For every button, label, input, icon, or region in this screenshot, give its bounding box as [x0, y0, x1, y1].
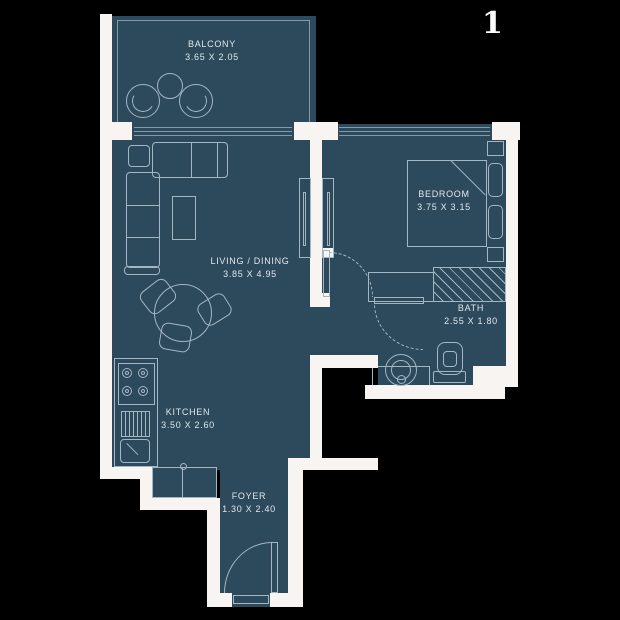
balcony-label: BALCONY 3.65 X 2.05 [185, 38, 239, 64]
shaft-top-wall [310, 355, 378, 368]
balcony-bottom-left-wall [100, 122, 132, 140]
coffee-table-icon [172, 196, 196, 240]
balcony-armchair-icon [179, 84, 213, 118]
sliding-door-line [134, 131, 292, 132]
sliding-door-line [134, 135, 292, 136]
room-name: FOYER [232, 491, 267, 501]
room-dimensions: 1.30 X 2.40 [222, 504, 276, 514]
entry-door-sill [233, 595, 269, 604]
stove-burner-icon [122, 386, 132, 396]
room-dimensions: 3.85 X 4.95 [223, 269, 277, 279]
entry-door-leaf [271, 542, 278, 593]
pillow-icon [488, 205, 503, 239]
sofa-armrest-line [217, 143, 218, 177]
utility-counter-icon [152, 467, 217, 498]
sliding-door-line [134, 127, 292, 128]
sofa-armrest-cap-icon [124, 266, 160, 275]
room-name: BALCONY [188, 39, 236, 49]
shaft-bottom-wall [288, 458, 378, 470]
bedroom-label: BEDROOM 3.75 X 3.15 [417, 188, 471, 214]
bath-bottom-wall [365, 385, 505, 399]
living-shaft-divider-wall [310, 355, 322, 470]
room-name: BEDROOM [418, 189, 469, 199]
balcony-table-icon [157, 73, 183, 99]
room-name: BATH [458, 303, 484, 313]
sofa-cushion-line [127, 205, 159, 206]
living-bedroom-divider-wall [310, 137, 322, 297]
entry-right-wall [270, 593, 303, 607]
bath-label: BATH 2.55 X 1.80 [444, 302, 498, 328]
left-exterior-wall [100, 14, 112, 479]
appliance-knob-icon [180, 463, 187, 470]
tv-screen-icon [303, 192, 306, 246]
window-line [339, 131, 490, 132]
room-dimensions: 3.50 X 2.60 [161, 420, 215, 430]
room-dimensions: 3.65 X 2.05 [185, 52, 239, 62]
bedroom-window [337, 124, 492, 140]
sofa-cushion-line [127, 237, 159, 238]
bedroom-right-wall [506, 122, 518, 387]
room-dimensions: 2.55 X 1.80 [444, 316, 498, 326]
balcony-sliding-door [132, 124, 294, 140]
stove-burner-icon [138, 386, 148, 396]
foyer-right-wall [288, 470, 303, 607]
sofa-left-section-icon [126, 172, 160, 268]
sofa-cushion-line [191, 143, 192, 177]
room-name: KITCHEN [166, 407, 210, 417]
toilet-base-icon [433, 371, 466, 383]
window-line [339, 135, 490, 136]
dining-chair-icon [158, 322, 193, 354]
foyer-label: FOYER 1.30 X 2.40 [222, 490, 276, 516]
nightstand-icon [487, 141, 504, 156]
kitchen-label: KITCHEN 3.50 X 2.60 [161, 406, 215, 432]
window-line [339, 127, 490, 128]
balcony-armchair-icon [126, 84, 160, 118]
unit-number: 1 [482, 6, 503, 41]
nightstand-icon [487, 247, 504, 262]
pillow-icon [488, 163, 503, 197]
stove-burner-icon [138, 368, 148, 378]
stove-burner-icon [122, 368, 132, 378]
entry-left-wall [207, 593, 232, 607]
bath-corner-step-wall [473, 366, 518, 387]
room-name: LIVING / DINING [210, 256, 289, 266]
wardrobe-hatched-icon [433, 267, 506, 302]
floor-plan: BALCONY 3.65 X 2.05 LIVING / DINING 3.85… [0, 0, 620, 620]
living-dining-label: LIVING / DINING 3.85 X 4.95 [210, 255, 289, 281]
foyer-left-wall [207, 498, 220, 607]
tv-screen-icon [327, 192, 330, 246]
basin-tap-icon [397, 375, 406, 384]
sink-drainboard-icon [121, 411, 150, 437]
counter-divider-line [182, 467, 183, 498]
room-dimensions: 3.75 X 3.15 [417, 202, 471, 212]
side-table-icon [128, 145, 150, 167]
toilet-seat-icon [443, 351, 457, 367]
